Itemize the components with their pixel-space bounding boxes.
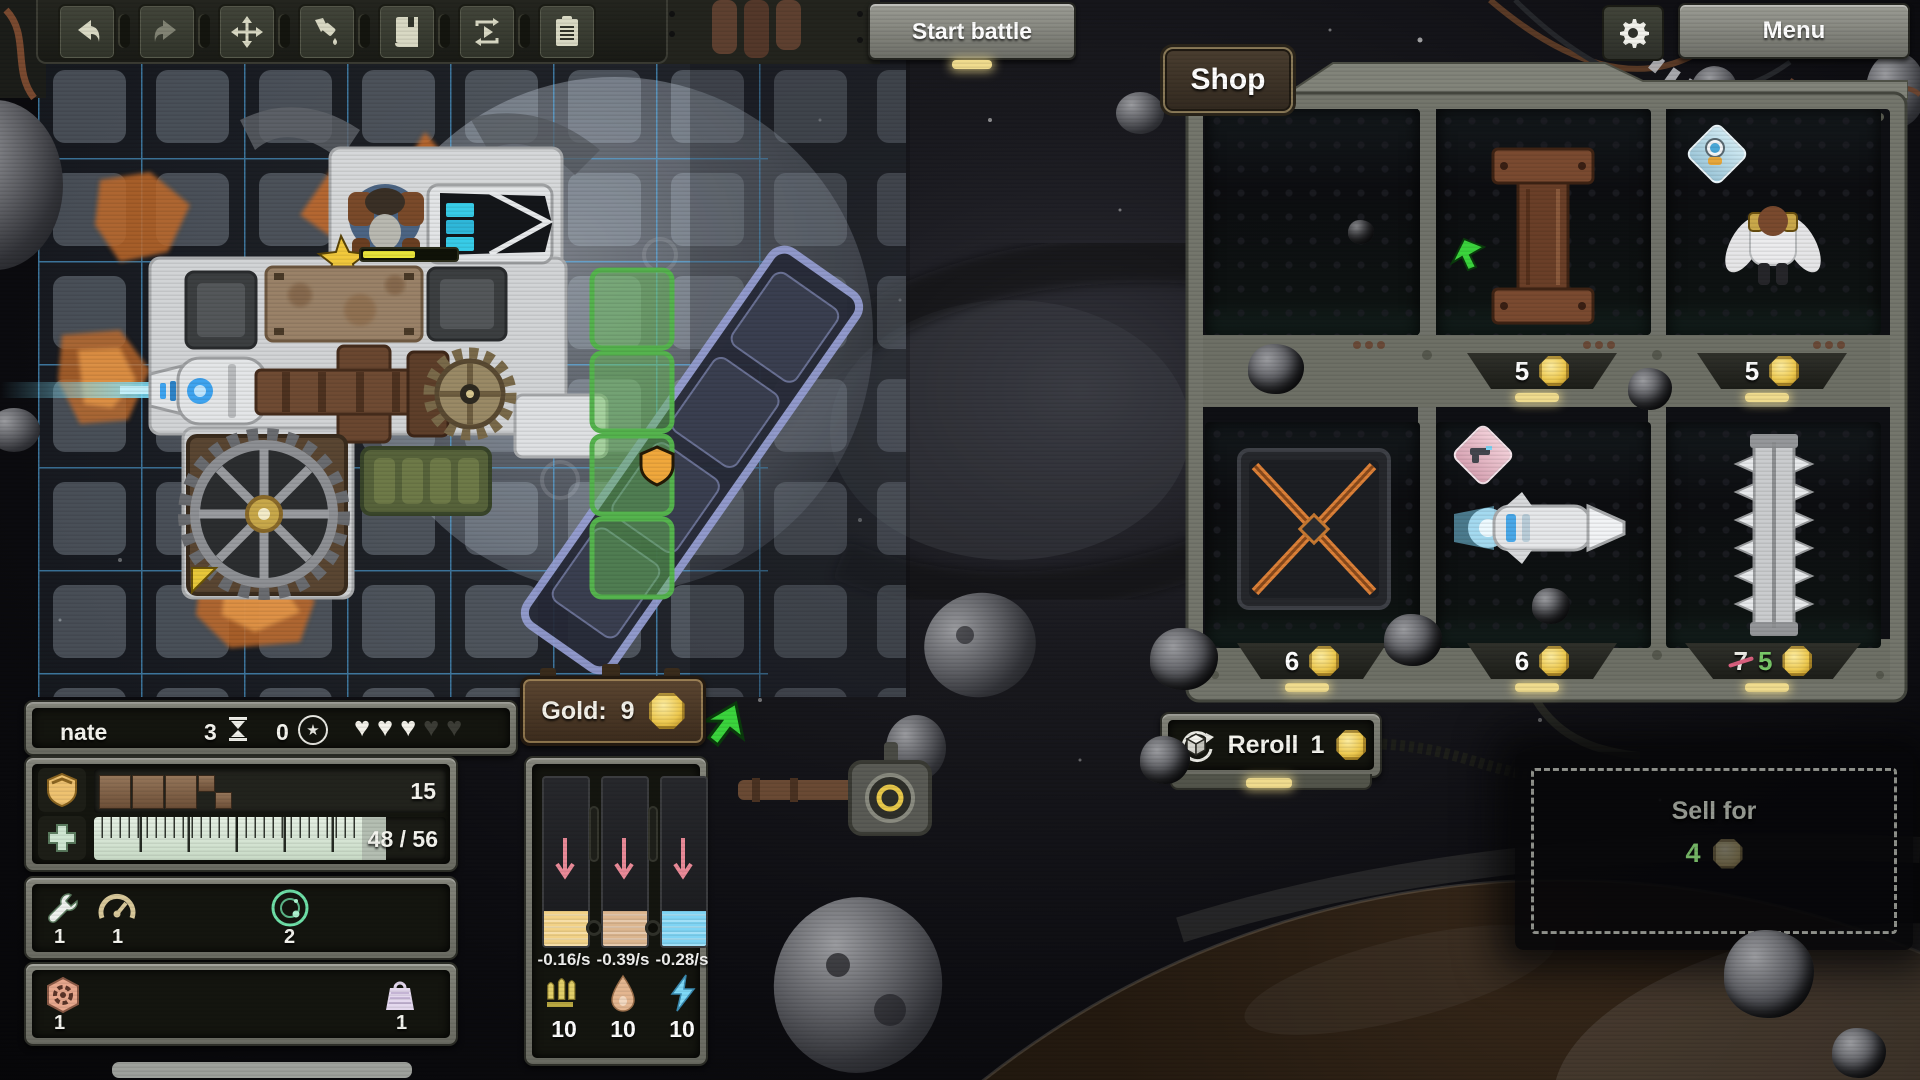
- shop-slot-spiked-ram[interactable]: [1666, 422, 1881, 648]
- asteroid: [1628, 368, 1672, 410]
- hover-cursor-icon: [1452, 239, 1484, 270]
- energy-bolt-icon: [668, 974, 698, 1012]
- ammo-icon: [546, 976, 582, 1012]
- gauge-icon: [98, 890, 136, 926]
- timer-value: 3: [204, 719, 217, 746]
- fuel-meter: [601, 776, 649, 948]
- cursor-icon: [702, 699, 748, 748]
- coin-icon: [1782, 646, 1812, 676]
- heart-icon: ♥: [377, 712, 400, 742]
- asteroid: [1140, 736, 1190, 784]
- menu-label: Menu: [1763, 17, 1826, 45]
- player-name: nate: [60, 719, 107, 746]
- price-girder: 5: [1467, 353, 1617, 389]
- asteroid: [1384, 614, 1442, 666]
- sell-dash-border: Sell for 4: [1531, 768, 1897, 934]
- cycle-button[interactable]: [458, 4, 516, 60]
- heart-icon: ♥: [400, 712, 423, 742]
- crew-character: [348, 184, 424, 258]
- shop-title: Shop: [1163, 47, 1293, 113]
- gold-value: 9: [621, 697, 635, 726]
- wrench-icon: [44, 890, 80, 926]
- paint-button[interactable]: [298, 4, 356, 60]
- start-battle-button[interactable]: Start battle: [868, 2, 1076, 60]
- armor-bar: 15: [94, 769, 446, 813]
- cargo-module: [362, 448, 490, 514]
- weapon-badge-glyph: [1466, 438, 1496, 468]
- crew-engineer-count: 1: [54, 1012, 65, 1035]
- radar-icon: [270, 888, 310, 928]
- armor-badge-icon: [641, 447, 673, 485]
- flywheel-module: [184, 434, 346, 594]
- weight-icon: [384, 978, 416, 1012]
- gold-label: Gold:: [541, 697, 606, 726]
- crew-cargo-count: 1: [396, 1012, 407, 1035]
- ammo-amount: 10: [536, 1016, 592, 1043]
- crew-panel-1: 1 1 2: [24, 876, 458, 960]
- sell-label: Sell for: [1672, 797, 1757, 826]
- reroll-cost: 1: [1310, 731, 1324, 760]
- crew-officer-item: [1718, 206, 1829, 285]
- energy-amount: 10: [654, 1016, 710, 1043]
- crew-panel-2: 1 1: [24, 962, 458, 1046]
- asteroid: [1532, 588, 1570, 624]
- heart-icon: ♥: [354, 712, 377, 742]
- menu-button[interactable]: Menu: [1678, 3, 1910, 59]
- hearts-row: ♥♥♥♥♥: [354, 714, 469, 741]
- stats-panel: 15 48 / 56: [24, 756, 458, 872]
- price-spiked-ram: 7 5: [1685, 643, 1861, 679]
- score-value: 0: [276, 719, 289, 746]
- reroll-button[interactable]: Reroll 1: [1160, 712, 1382, 778]
- armor-value: 15: [410, 778, 436, 805]
- crew-repair-count: 1: [54, 926, 65, 949]
- crew-badge-glyph: [1699, 136, 1731, 168]
- price-x-brace: 6: [1237, 643, 1387, 679]
- asteroid: [1248, 344, 1304, 394]
- fuel-rate: -0.39/s: [595, 950, 651, 970]
- shop-slot-crew-officer[interactable]: [1666, 109, 1881, 335]
- settings-button[interactable]: [1602, 5, 1664, 61]
- price-thruster: 6: [1467, 643, 1617, 679]
- spiked-ram-item: [1736, 434, 1812, 636]
- player-bar: nate 3 0 ★ ♥♥♥♥♥: [24, 700, 518, 756]
- x-brace-item: [1239, 450, 1389, 608]
- heart-icon: ♥: [446, 712, 469, 742]
- shop-slot-empty[interactable]: [1205, 109, 1420, 335]
- sell-dropzone[interactable]: Sell for 4: [1515, 752, 1913, 950]
- health-plus-icon: [47, 823, 77, 853]
- coin-icon: [1309, 646, 1339, 676]
- ammo-rate: -0.16/s: [536, 950, 592, 970]
- log-button[interactable]: [538, 4, 596, 60]
- fuel-amount: 10: [595, 1016, 651, 1043]
- crew-pilot-count: 1: [112, 926, 123, 949]
- coin-icon: [1713, 839, 1743, 869]
- armor-shield-icon: [47, 773, 77, 807]
- engineer-hex-icon: [44, 976, 82, 1014]
- asteroid: [1348, 220, 1374, 244]
- platform-module: [266, 267, 422, 341]
- sell-value: 4: [1685, 838, 1700, 869]
- resource-meters-panel: -0.16/s -0.39/s -0.28/s 10 10 10: [524, 756, 708, 1066]
- coin-icon: [1769, 356, 1799, 386]
- reroll-label: Reroll: [1228, 731, 1299, 760]
- shop-slot-x-brace[interactable]: [1205, 422, 1420, 648]
- asteroid: [1724, 930, 1814, 1018]
- undo-button[interactable]: [58, 4, 116, 60]
- game-screen: Start battle Menu Shop: [0, 0, 1920, 1080]
- start-battle-label: Start battle: [912, 18, 1032, 45]
- ammo-meter: [542, 776, 590, 948]
- asteroid: [1832, 1028, 1886, 1078]
- hose-decor: [1382, 744, 1528, 775]
- move-button[interactable]: [218, 4, 276, 60]
- gear-icon: [1616, 16, 1650, 50]
- hull-value: 48 / 56: [368, 826, 438, 853]
- crew-radar-count: 2: [284, 926, 295, 949]
- gold-panel: Gold: 9: [520, 676, 706, 746]
- coin-icon: [1539, 356, 1569, 386]
- heart-icon: ♥: [423, 712, 446, 742]
- energy-rate: -0.28/s: [654, 950, 710, 970]
- blueprint-book-button[interactable]: [378, 4, 436, 60]
- shop-slot-girder[interactable]: [1436, 109, 1651, 335]
- energy-meter: [660, 776, 708, 948]
- fuel-drop-icon: [608, 974, 638, 1012]
- coin-icon: [1336, 730, 1366, 760]
- asteroid: [1150, 628, 1218, 690]
- placement-highlight: [592, 270, 673, 597]
- hull-bar: 48 / 56: [94, 817, 446, 860]
- capstan-module: [429, 353, 511, 435]
- star-medal-icon: ★: [298, 715, 328, 745]
- price-crew: 5: [1697, 353, 1847, 389]
- redo-button[interactable]: [138, 4, 196, 60]
- coin-icon: [1539, 646, 1569, 676]
- girder-item: [1493, 149, 1593, 323]
- thruster-item: [1454, 492, 1624, 564]
- hourglass-icon: [228, 717, 248, 741]
- coin-icon: [649, 693, 685, 729]
